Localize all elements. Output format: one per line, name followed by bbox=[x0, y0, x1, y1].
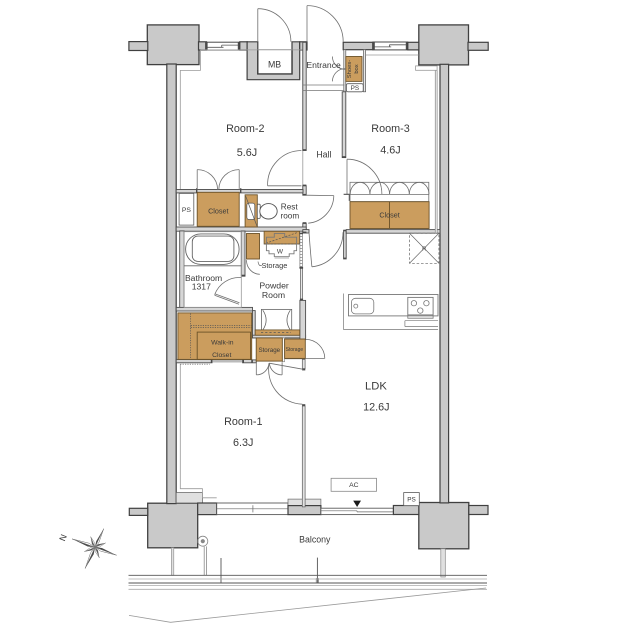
svg-text:Room-3: Room-3 bbox=[371, 123, 409, 135]
svg-text:Closet: Closet bbox=[379, 211, 399, 220]
svg-text:Shoes-: Shoes- bbox=[347, 60, 353, 78]
svg-text:Room-2: Room-2 bbox=[226, 123, 264, 135]
svg-text:W: W bbox=[277, 248, 284, 255]
svg-text:PS: PS bbox=[351, 85, 360, 92]
svg-text:4.6J: 4.6J bbox=[380, 144, 400, 156]
svg-text:12.6J: 12.6J bbox=[363, 402, 389, 414]
svg-text:Closet: Closet bbox=[208, 206, 228, 215]
svg-text:Room-1: Room-1 bbox=[224, 416, 262, 428]
svg-text:N: N bbox=[57, 533, 69, 543]
svg-text:Hall: Hall bbox=[316, 149, 331, 159]
svg-text:Room: Room bbox=[262, 290, 285, 300]
svg-text:LDK: LDK bbox=[365, 380, 387, 392]
svg-text:PS: PS bbox=[407, 497, 416, 504]
svg-text:Closet: Closet bbox=[212, 352, 231, 359]
svg-text:5.6J: 5.6J bbox=[237, 147, 257, 159]
svg-text:PS: PS bbox=[182, 207, 192, 214]
svg-text:1317: 1317 bbox=[192, 282, 211, 292]
svg-text:6.3J: 6.3J bbox=[233, 437, 253, 449]
svg-text:box: box bbox=[354, 64, 360, 73]
svg-text:AC: AC bbox=[349, 482, 359, 489]
svg-text:Balcony: Balcony bbox=[299, 535, 331, 545]
svg-text:Entrance: Entrance bbox=[306, 60, 341, 70]
svg-text:MB: MB bbox=[268, 59, 281, 69]
svg-text:Rest: Rest bbox=[281, 203, 299, 212]
svg-text:R: R bbox=[422, 247, 426, 253]
svg-text:Storage: Storage bbox=[261, 261, 287, 270]
svg-text:room: room bbox=[281, 211, 300, 220]
svg-text:Storage: Storage bbox=[258, 347, 280, 354]
svg-text:Storage: Storage bbox=[286, 347, 304, 353]
svg-text:Walk-in: Walk-in bbox=[211, 340, 234, 347]
